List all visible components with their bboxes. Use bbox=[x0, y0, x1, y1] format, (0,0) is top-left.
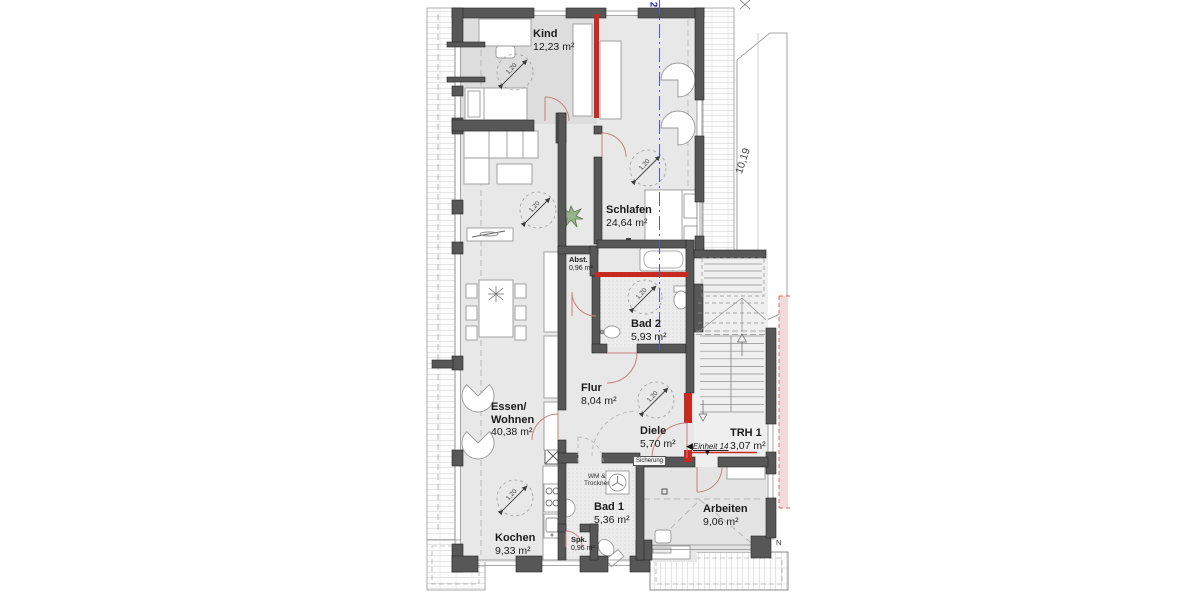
room-area: 8,04 m² bbox=[581, 395, 617, 407]
room-label-kochen: Kochen 9,33 m² bbox=[495, 532, 535, 557]
floor-plan: 1,20 1,20 1,20 1,20 1,20 1,20 bbox=[0, 0, 1200, 600]
room-name: Bad 1 bbox=[594, 501, 630, 514]
schlafen-wardrobe bbox=[600, 41, 621, 119]
room-name: Wohnen bbox=[491, 414, 534, 427]
room-label-trh: TRH 1 3,07 m² bbox=[730, 427, 766, 452]
hall-wardrobe bbox=[544, 336, 558, 398]
room-label-kind: Kind 12,23 m² bbox=[533, 28, 574, 53]
room-area: 0,96 m² bbox=[571, 545, 595, 553]
room-label-essen-wohnen: Essen/ Wohnen 40,38 m² bbox=[491, 401, 534, 438]
room-area: 5,93 m² bbox=[631, 331, 667, 343]
office-shelf bbox=[727, 466, 765, 479]
room-name: Arbeiten bbox=[703, 503, 748, 516]
kind-bed bbox=[465, 88, 527, 120]
room-label-bad2: Bad 2 5,93 m² bbox=[631, 318, 667, 343]
hall-wardrobe bbox=[544, 252, 558, 332]
room-area: 5,70 m² bbox=[640, 438, 676, 450]
hall-wardrobe bbox=[544, 402, 558, 450]
room-area: 9,06 m² bbox=[703, 516, 748, 528]
room-label-diele: Diele 5,70 m² bbox=[640, 425, 676, 450]
bathtub bbox=[640, 248, 686, 271]
room-name: Kochen bbox=[495, 532, 535, 545]
section-mark-label: 2 bbox=[647, 2, 658, 8]
room-label-arbeiten: Arbeiten 9,06 m² bbox=[703, 503, 748, 528]
entrance-arrow-down-icon: ▼ bbox=[703, 447, 712, 457]
room-label-schlafen: Schlafen 24,64 m² bbox=[606, 204, 652, 229]
neighbor-unit-band bbox=[779, 296, 790, 508]
roof-hatch-left bbox=[427, 8, 455, 540]
room-name: Schlafen bbox=[606, 204, 652, 217]
room-area: 0,96 m² bbox=[569, 265, 593, 273]
dining-table bbox=[466, 280, 526, 340]
room-area: 9,33 m² bbox=[495, 545, 535, 557]
entrance-arrow-left-icon: ◀ bbox=[686, 441, 693, 451]
room-area: 40,38 m² bbox=[491, 426, 534, 438]
room-area: 12,23 m² bbox=[533, 41, 574, 53]
room-label-bad1: Bad 1 5,36 m² bbox=[594, 501, 630, 526]
sicherung-label: Sicherung bbox=[633, 456, 666, 466]
room-area: 3,07 m² bbox=[730, 440, 766, 452]
room-area: 5,36 m² bbox=[594, 514, 630, 526]
room-label-abst: Abst. 0,96 m² bbox=[569, 256, 593, 273]
room-label-spk: Spk. 0,96 m² bbox=[571, 536, 595, 553]
room-name: Flur bbox=[581, 382, 617, 395]
wm-label-line2: Trockner bbox=[584, 480, 609, 487]
room-name: Essen/ bbox=[491, 401, 534, 414]
coffee-table bbox=[497, 164, 532, 184]
room-name: Diele bbox=[640, 425, 676, 438]
room-name: TRH 1 bbox=[730, 427, 766, 440]
sideboard bbox=[467, 228, 513, 241]
wm-label-line1: WM & bbox=[584, 473, 609, 480]
kind-wardrobe bbox=[573, 24, 592, 116]
wm-label: WM & Trockner bbox=[584, 473, 609, 488]
room-area: 24,64 m² bbox=[606, 217, 652, 229]
room-name: Bad 2 bbox=[631, 318, 667, 331]
washing-machine-icon bbox=[606, 471, 629, 494]
room-name: Abst. bbox=[569, 256, 593, 265]
room-name: Spk. bbox=[571, 536, 595, 545]
north-mark: N bbox=[776, 538, 781, 547]
room-name: Kind bbox=[533, 28, 574, 41]
room-label-flur: Flur 8,04 m² bbox=[581, 382, 617, 407]
